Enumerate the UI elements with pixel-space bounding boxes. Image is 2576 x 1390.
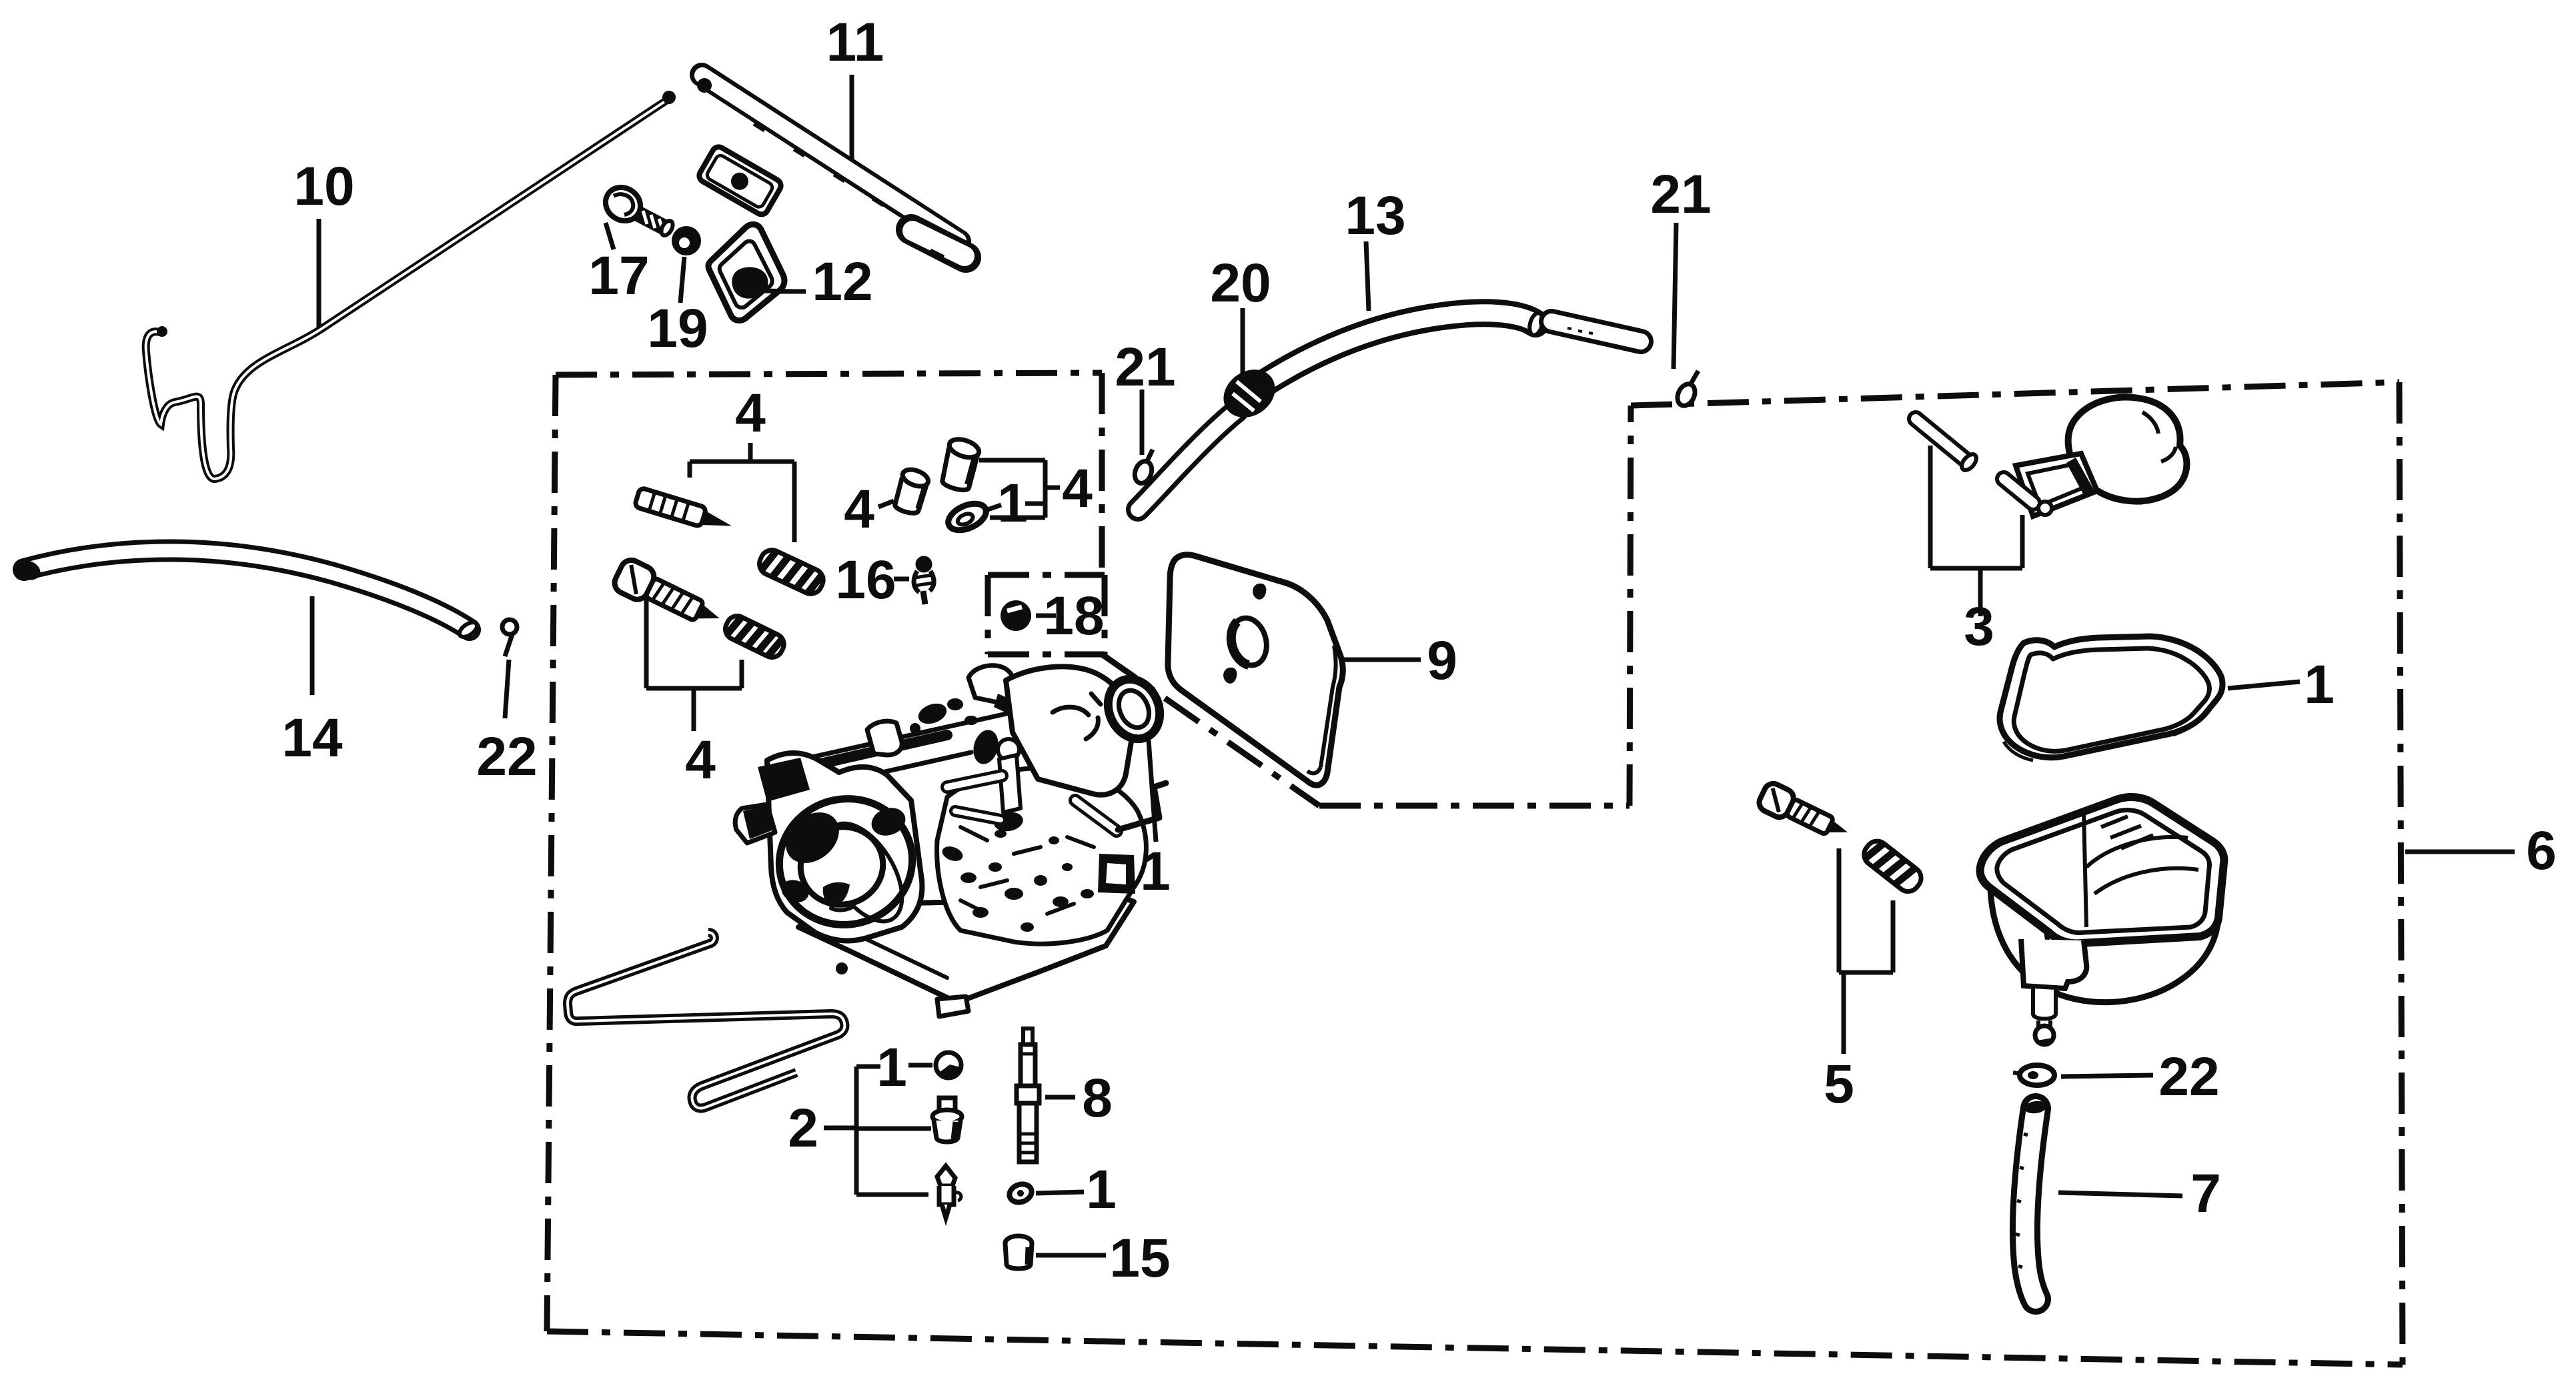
svg-text:9: 9	[1427, 630, 1457, 691]
svg-text:15: 15	[1109, 1228, 1170, 1289]
svg-text:22: 22	[476, 726, 537, 787]
svg-text:22: 22	[2158, 1047, 2219, 1107]
svg-text:13: 13	[1345, 185, 1405, 246]
svg-text:11: 11	[826, 12, 884, 73]
svg-text:1: 1	[2304, 654, 2335, 715]
svg-text:4: 4	[1062, 458, 1093, 519]
svg-text:4: 4	[735, 383, 766, 444]
svg-text:21: 21	[1650, 164, 1711, 225]
svg-text:7: 7	[2190, 1163, 2221, 1224]
svg-text:21: 21	[1115, 337, 1175, 398]
svg-text:8: 8	[1082, 1068, 1113, 1129]
svg-text:4: 4	[844, 479, 874, 540]
svg-text:1: 1	[876, 1037, 907, 1098]
svg-text:2: 2	[788, 1098, 818, 1159]
svg-text:16: 16	[835, 550, 896, 610]
svg-text:17: 17	[588, 245, 649, 306]
svg-text:12: 12	[812, 251, 872, 312]
svg-text:1: 1	[997, 473, 1028, 534]
svg-text:6: 6	[2526, 820, 2557, 881]
svg-text:4: 4	[685, 730, 716, 790]
svg-text:10: 10	[293, 156, 354, 217]
svg-text:20: 20	[1210, 253, 1271, 313]
svg-text:1: 1	[1086, 1159, 1117, 1220]
svg-text:19: 19	[647, 298, 708, 359]
svg-text:5: 5	[1824, 1054, 1854, 1115]
svg-text:14: 14	[281, 708, 343, 768]
